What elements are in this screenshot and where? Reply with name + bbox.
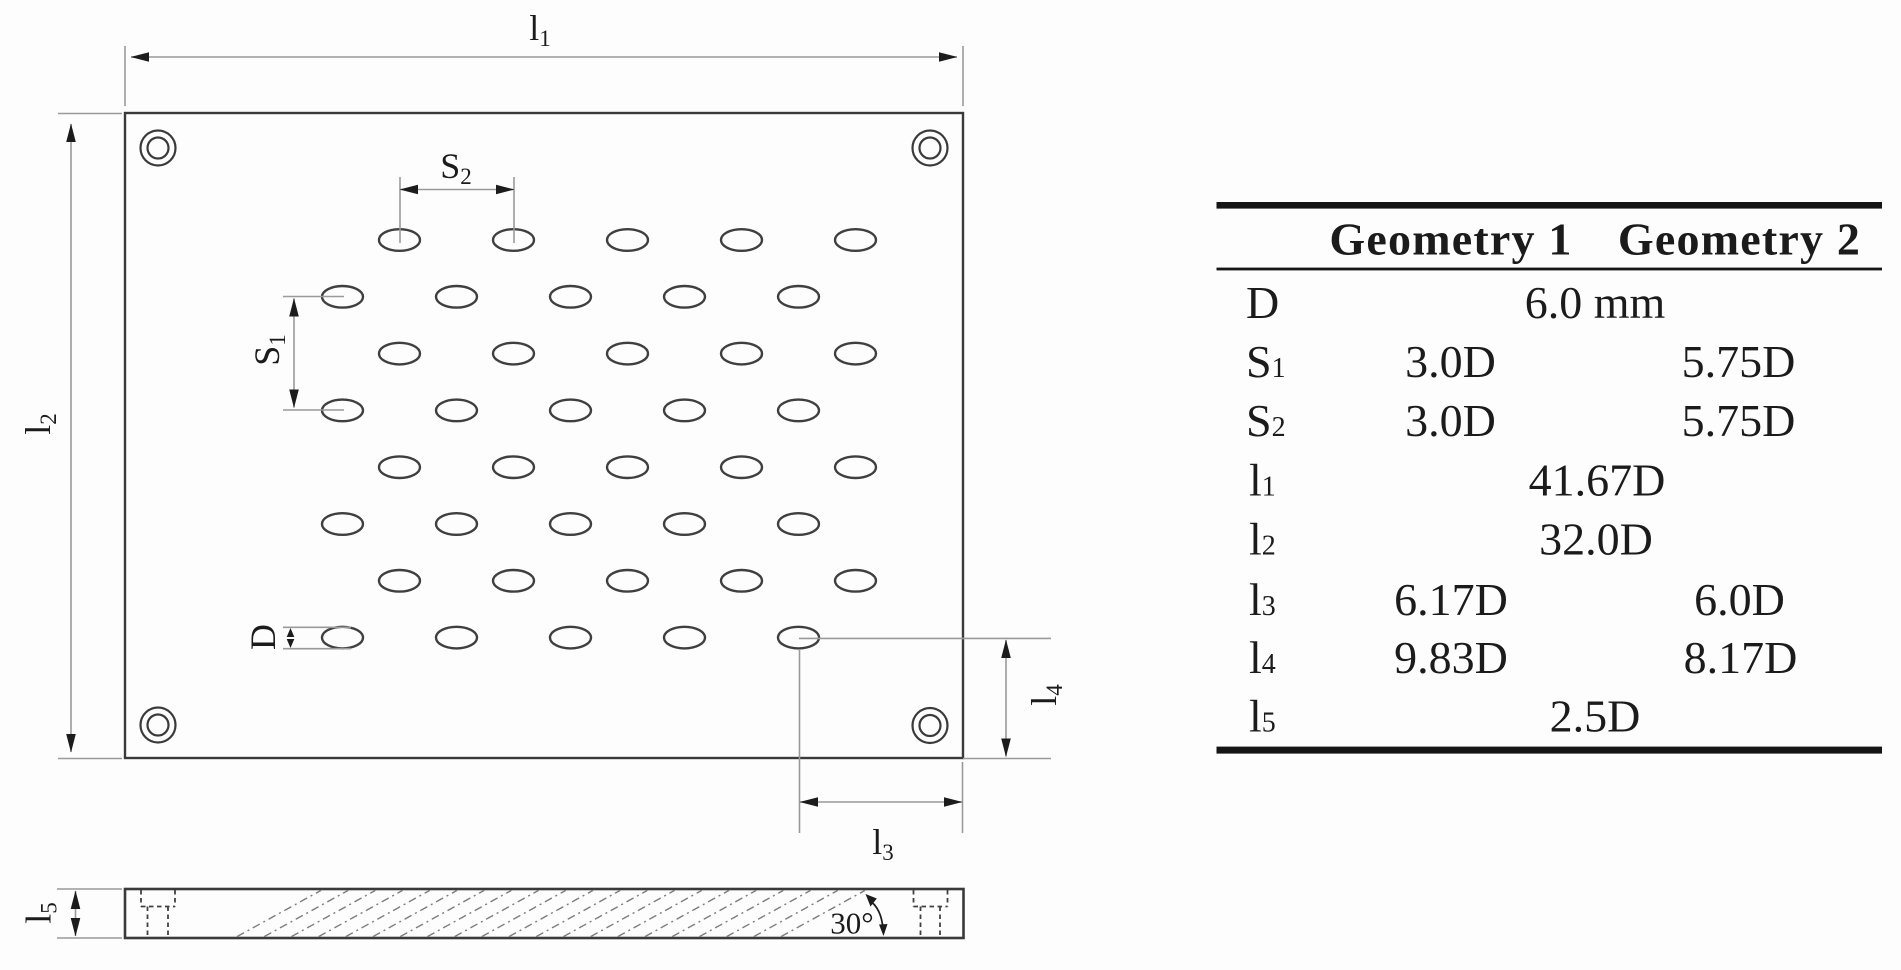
svg-text:6.17D: 6.17D: [1394, 574, 1508, 625]
svg-text:41.67D: 41.67D: [1529, 455, 1666, 506]
svg-text:30°: 30°: [830, 906, 873, 941]
svg-text:32.0D: 32.0D: [1539, 514, 1653, 565]
svg-text:l1: l1: [529, 8, 551, 51]
svg-text:5.75D: 5.75D: [1682, 336, 1796, 387]
svg-text:6.0 mm: 6.0 mm: [1525, 277, 1666, 328]
svg-text:5.75D: 5.75D: [1682, 395, 1796, 446]
svg-text:3.0D: 3.0D: [1405, 336, 1496, 387]
svg-text:Geometry 1: Geometry 1: [1329, 214, 1572, 265]
svg-text:D: D: [243, 624, 283, 650]
svg-text:9.83D: 9.83D: [1394, 632, 1508, 683]
svg-text:6.0D: 6.0D: [1694, 574, 1785, 625]
svg-text:3.0D: 3.0D: [1405, 395, 1496, 446]
svg-text:l2: l2: [18, 413, 61, 435]
svg-text:D: D: [1246, 277, 1279, 328]
svg-text:l4: l4: [1024, 684, 1067, 706]
svg-text:8.17D: 8.17D: [1684, 632, 1798, 683]
svg-text:l2: l2: [1249, 514, 1276, 565]
svg-text:S2: S2: [440, 146, 472, 189]
svg-text:l4: l4: [1249, 632, 1276, 683]
svg-text:Geometry 2: Geometry 2: [1618, 214, 1861, 265]
svg-text:l5: l5: [1249, 691, 1276, 742]
svg-text:S1: S1: [247, 334, 290, 366]
svg-text:l3: l3: [872, 822, 894, 865]
svg-text:S1: S1: [1246, 336, 1286, 387]
svg-text:2.5D: 2.5D: [1550, 691, 1641, 742]
svg-text:S2: S2: [1246, 395, 1286, 446]
svg-text:l1: l1: [1249, 455, 1276, 506]
svg-text:l5: l5: [19, 902, 62, 924]
svg-text:l3: l3: [1249, 574, 1276, 625]
